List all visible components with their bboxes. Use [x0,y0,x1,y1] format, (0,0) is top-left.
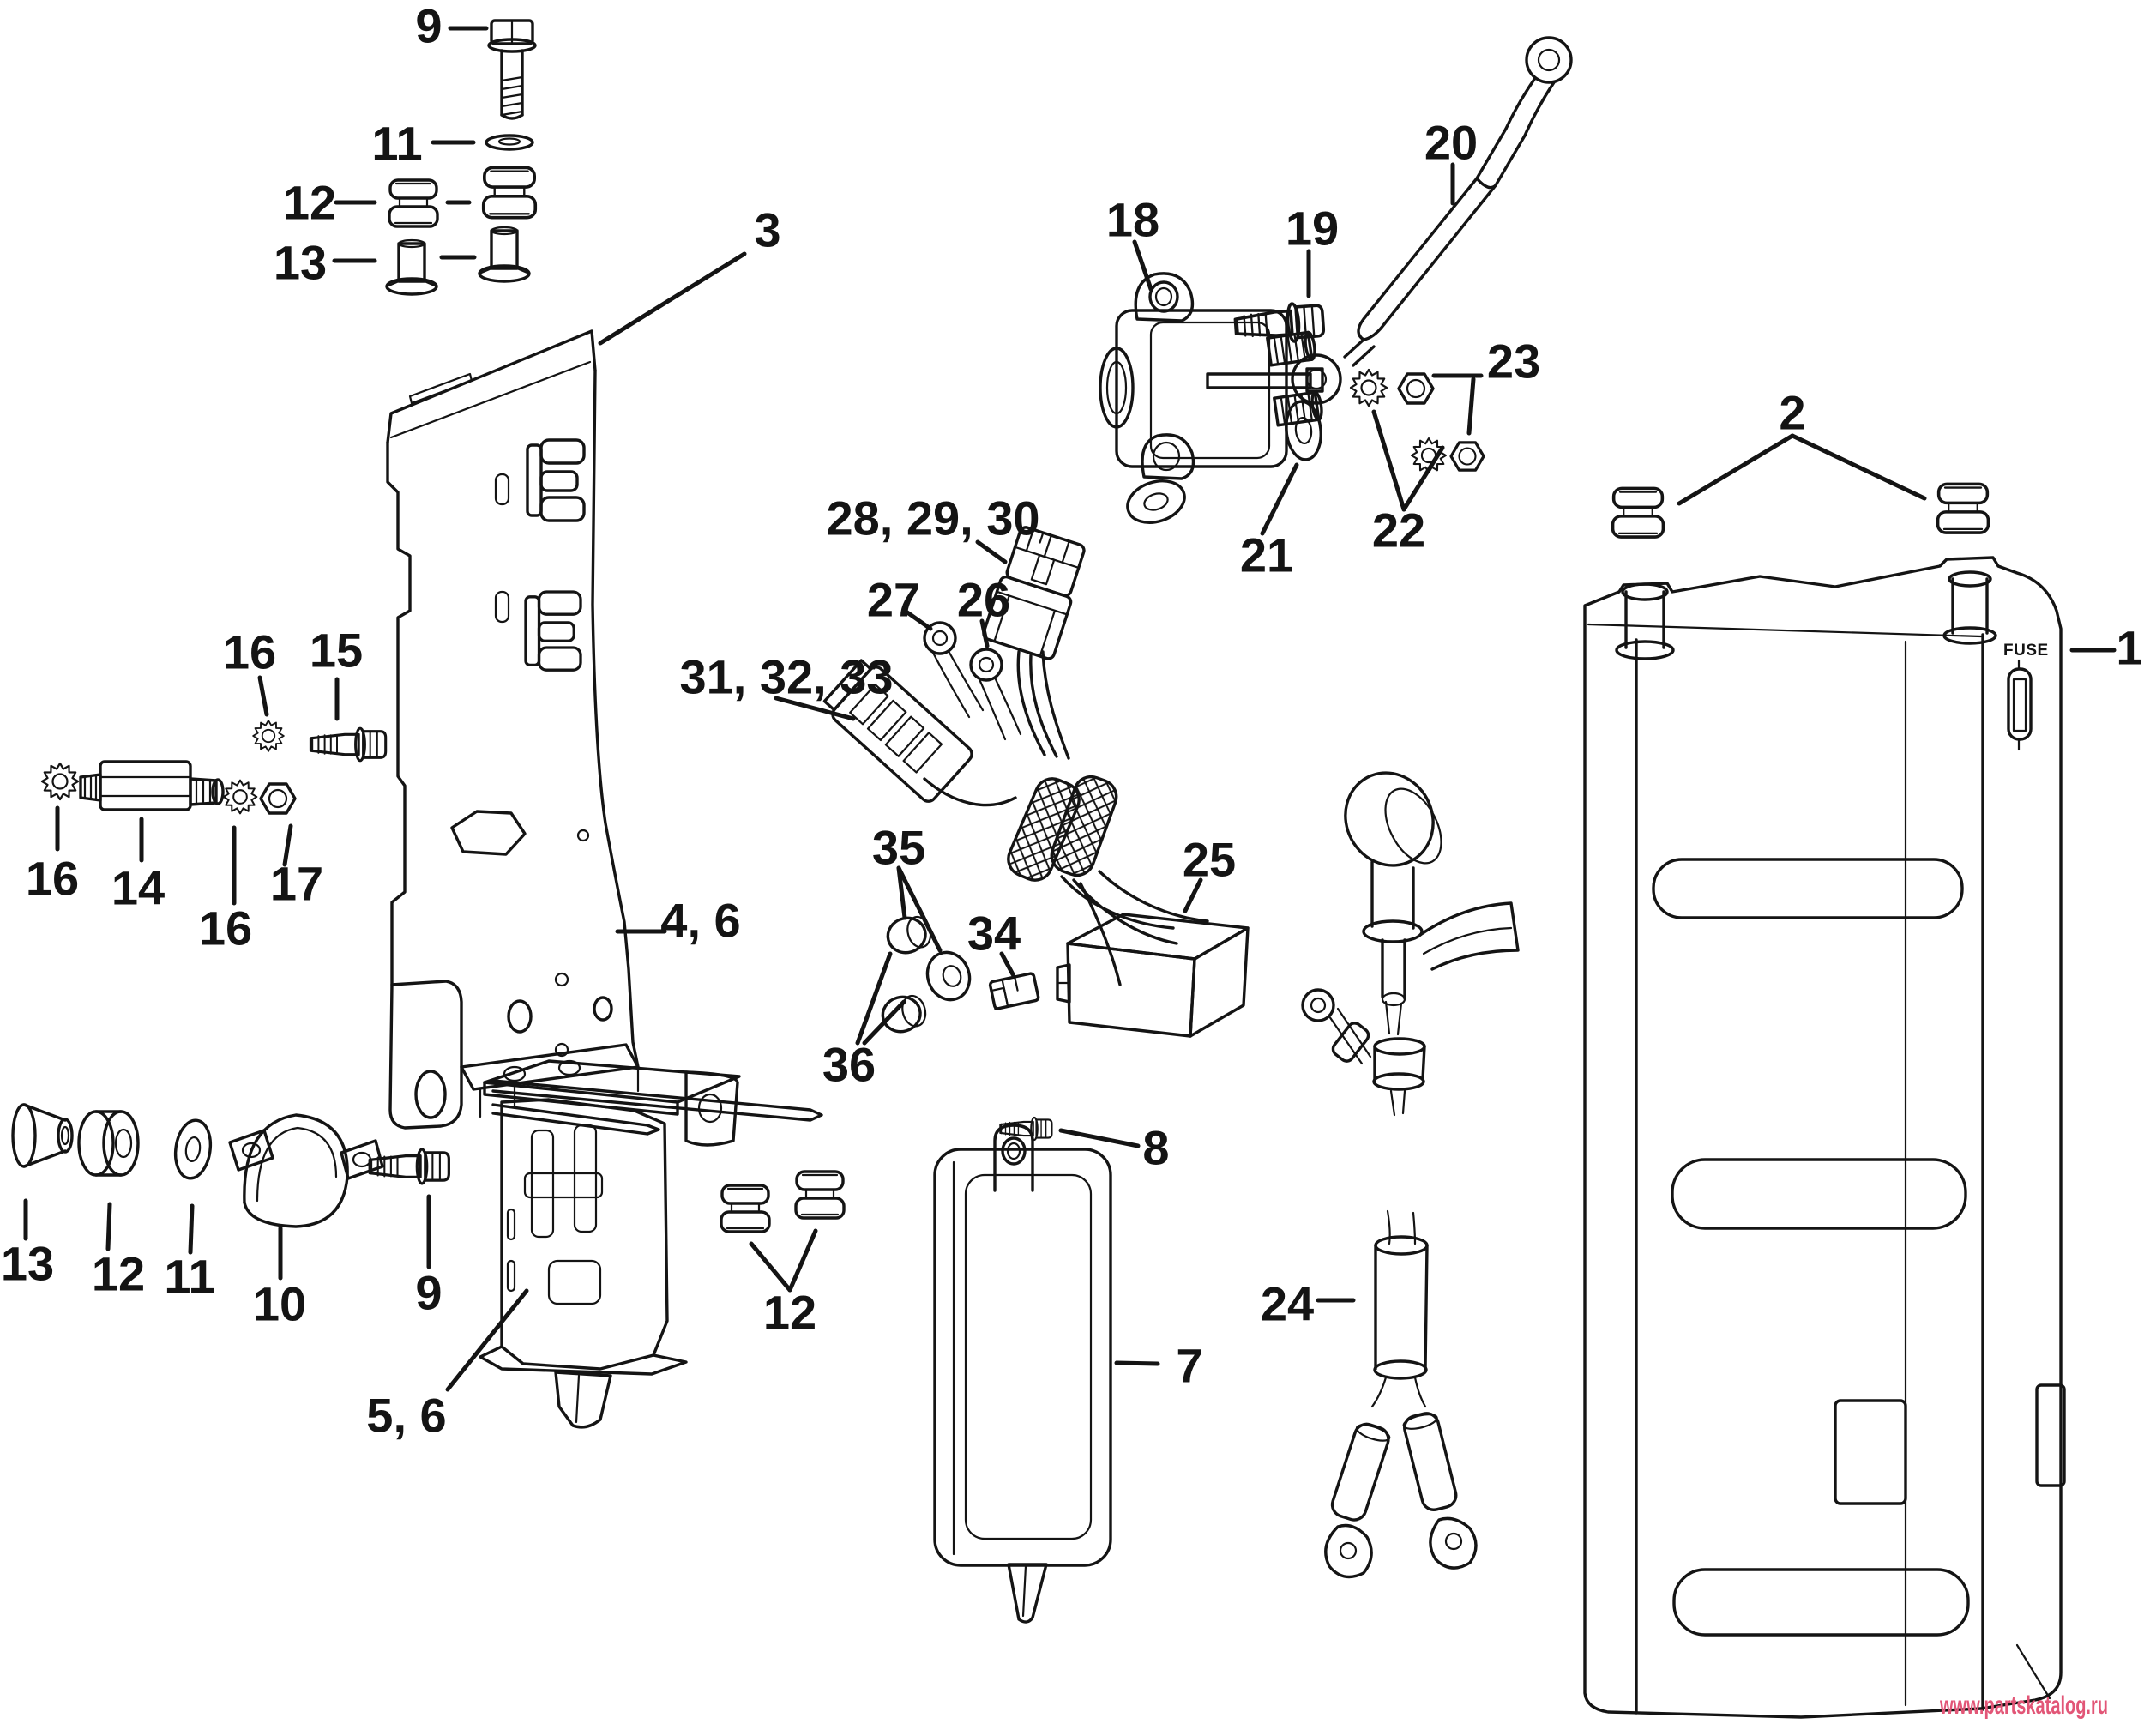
callout-label-17: 17 [270,857,323,911]
part-13-bushing-a [387,240,437,294]
callout-label-10: 10 [253,1277,306,1331]
part-2-grommet-right [1938,484,1989,533]
callout-label-9: 9 [415,0,442,53]
callout-label-16: 16 [26,852,79,906]
callout-label-11: 11 [164,1250,214,1304]
callout-label-12: 12 [763,1286,816,1340]
callout-label-16: 16 [223,625,276,679]
callout-label-21: 21 [1240,528,1293,582]
part-16-star-washer-mid [224,781,257,814]
part-3-bracket [388,331,638,1128]
callout-label-19: 19 [1286,202,1339,256]
callout-leader-3 [600,254,744,343]
part-19-bolt [1234,302,1324,346]
part-16-star-washer-top [253,720,284,751]
callout-label-25: 25 [1183,833,1236,887]
part-12-grommet-mid-a [721,1185,769,1232]
callout-label-11: 11 [371,117,422,171]
part-35-plug-b [879,992,930,1036]
part-14-spacer [81,762,223,810]
callout-label-26: 26 [957,573,1010,627]
callout-label-9: 9 [415,1266,442,1320]
part-17-nut [261,784,295,813]
part-1-electrical-box: FUSE [1585,558,2064,1717]
part-16-star-washer-left [42,763,78,799]
callout-label-7: 7 [1176,1339,1202,1393]
callout-leader-2 [1679,436,1792,503]
parts-layer: FUSE [13,21,2108,1720]
part-34-clip [990,973,1039,1009]
callout-leader-23 [1469,379,1473,433]
part-26-ring-terminal [971,649,1021,739]
callout-leader-36 [858,954,890,1043]
part-1-terminal-posts [1617,572,1996,659]
callout-label-20: 20 [1424,116,1478,170]
part-12-grommet-bl [79,1112,138,1175]
callout-label-12: 12 [92,1247,145,1301]
callout-label-18: 18 [1106,193,1159,247]
callout-leader-12 [790,1231,816,1290]
callout-label-2: 2 [1779,386,1805,440]
part-7-ecu [935,1125,1111,1622]
part-23-nut-b [1451,443,1484,470]
part-24-cable-assembly [1303,757,1518,1577]
fuse-label: FUSE [2003,642,2049,660]
callout-label-15: 15 [310,624,363,678]
part-10-clamp [230,1115,382,1227]
callout-label-4-6: 4, 6 [660,894,740,948]
callout-label-12: 12 [283,176,336,230]
part-25-relay [1057,914,1248,1036]
part-12-grommet-mid-b [796,1172,844,1218]
part-5-6-lower-bracket [480,1061,822,1427]
callout-leader-12 [751,1244,790,1290]
part-12-grommet-b [484,167,535,217]
callout-leader-21 [1262,465,1297,533]
callout-leader-16 [260,678,267,714]
callout-leader-22 [1404,448,1442,509]
callout-label-27: 27 [867,573,920,627]
part-9-bolt-top [489,21,535,118]
callout-label-16: 16 [199,901,252,955]
callout-leader-11 [190,1206,192,1252]
callout-leader-8 [1061,1130,1138,1146]
part-11-washer-top [486,136,533,149]
part-11-washer-bl [172,1118,214,1181]
callout-label-8: 8 [1142,1121,1169,1175]
callout-label-36: 36 [822,1038,876,1092]
watermark: www.partskatalog.ru [1939,1691,2108,1720]
callout-label-13: 13 [274,236,327,290]
callout-label-5-6: 5, 6 [366,1389,446,1443]
callout-label-1: 1 [2116,621,2142,675]
callout-leader-7 [1117,1363,1158,1364]
part-15-bolt [310,728,385,761]
callout-label-31-32-33: 31, 32, 33 [679,650,893,704]
part-12-grommet-a [389,180,437,226]
callout-label-3: 3 [754,203,780,257]
callout-leader-5-6 [448,1291,527,1389]
callout-label-34: 34 [967,907,1021,961]
callout-leader-22 [1374,412,1404,509]
callout-leader-2 [1792,436,1924,498]
part-2-grommet-left [1613,488,1664,537]
callout-layer: 911121331819202321222128, 29, 30272631, … [1,0,2143,1443]
part-27-ring-terminal [924,623,983,717]
part-13-bushing-b [479,227,529,281]
callout-label-28-29-30: 28, 29, 30 [826,491,1039,546]
callout-label-24: 24 [1261,1277,1314,1331]
callout-label-22: 22 [1372,503,1425,558]
callout-label-35: 35 [872,821,925,875]
diagram-page: FUSE [0,0,2144,1736]
callout-leader-12 [108,1204,110,1249]
part-23-nut-a [1399,374,1433,403]
part-13-bushing-bl [13,1105,72,1166]
part-22-star-washer-a [1351,370,1387,406]
callout-label-13: 13 [1,1237,54,1291]
callout-label-14: 14 [111,861,165,915]
callout-label-23: 23 [1487,335,1540,389]
